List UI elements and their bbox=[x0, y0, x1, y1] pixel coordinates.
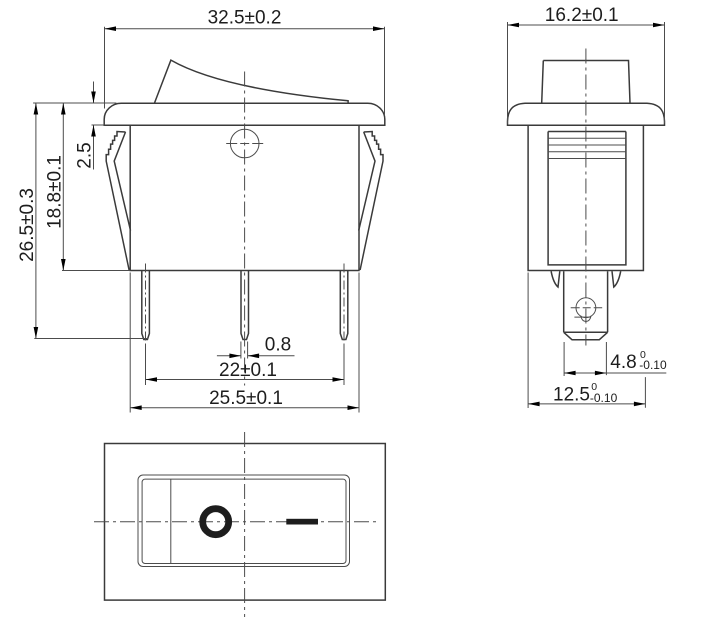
svg-text:18.8±0.1: 18.8±0.1 bbox=[44, 155, 65, 229]
svg-text:-0.10: -0.10 bbox=[590, 391, 618, 405]
svg-text:-0.10: -0.10 bbox=[639, 358, 667, 372]
svg-text:25.5±0.1: 25.5±0.1 bbox=[209, 388, 283, 409]
svg-text:26.5±0.3: 26.5±0.3 bbox=[17, 188, 38, 262]
svg-text:0.8: 0.8 bbox=[265, 335, 291, 356]
svg-text:22±0.1: 22±0.1 bbox=[219, 360, 277, 381]
svg-text:16.2±0.1: 16.2±0.1 bbox=[545, 5, 619, 26]
svg-text:4.8: 4.8 bbox=[610, 352, 636, 373]
svg-text:2.5: 2.5 bbox=[74, 142, 95, 168]
svg-text:12.5: 12.5 bbox=[553, 385, 590, 406]
svg-text:32.5±0.2: 32.5±0.2 bbox=[208, 8, 282, 29]
